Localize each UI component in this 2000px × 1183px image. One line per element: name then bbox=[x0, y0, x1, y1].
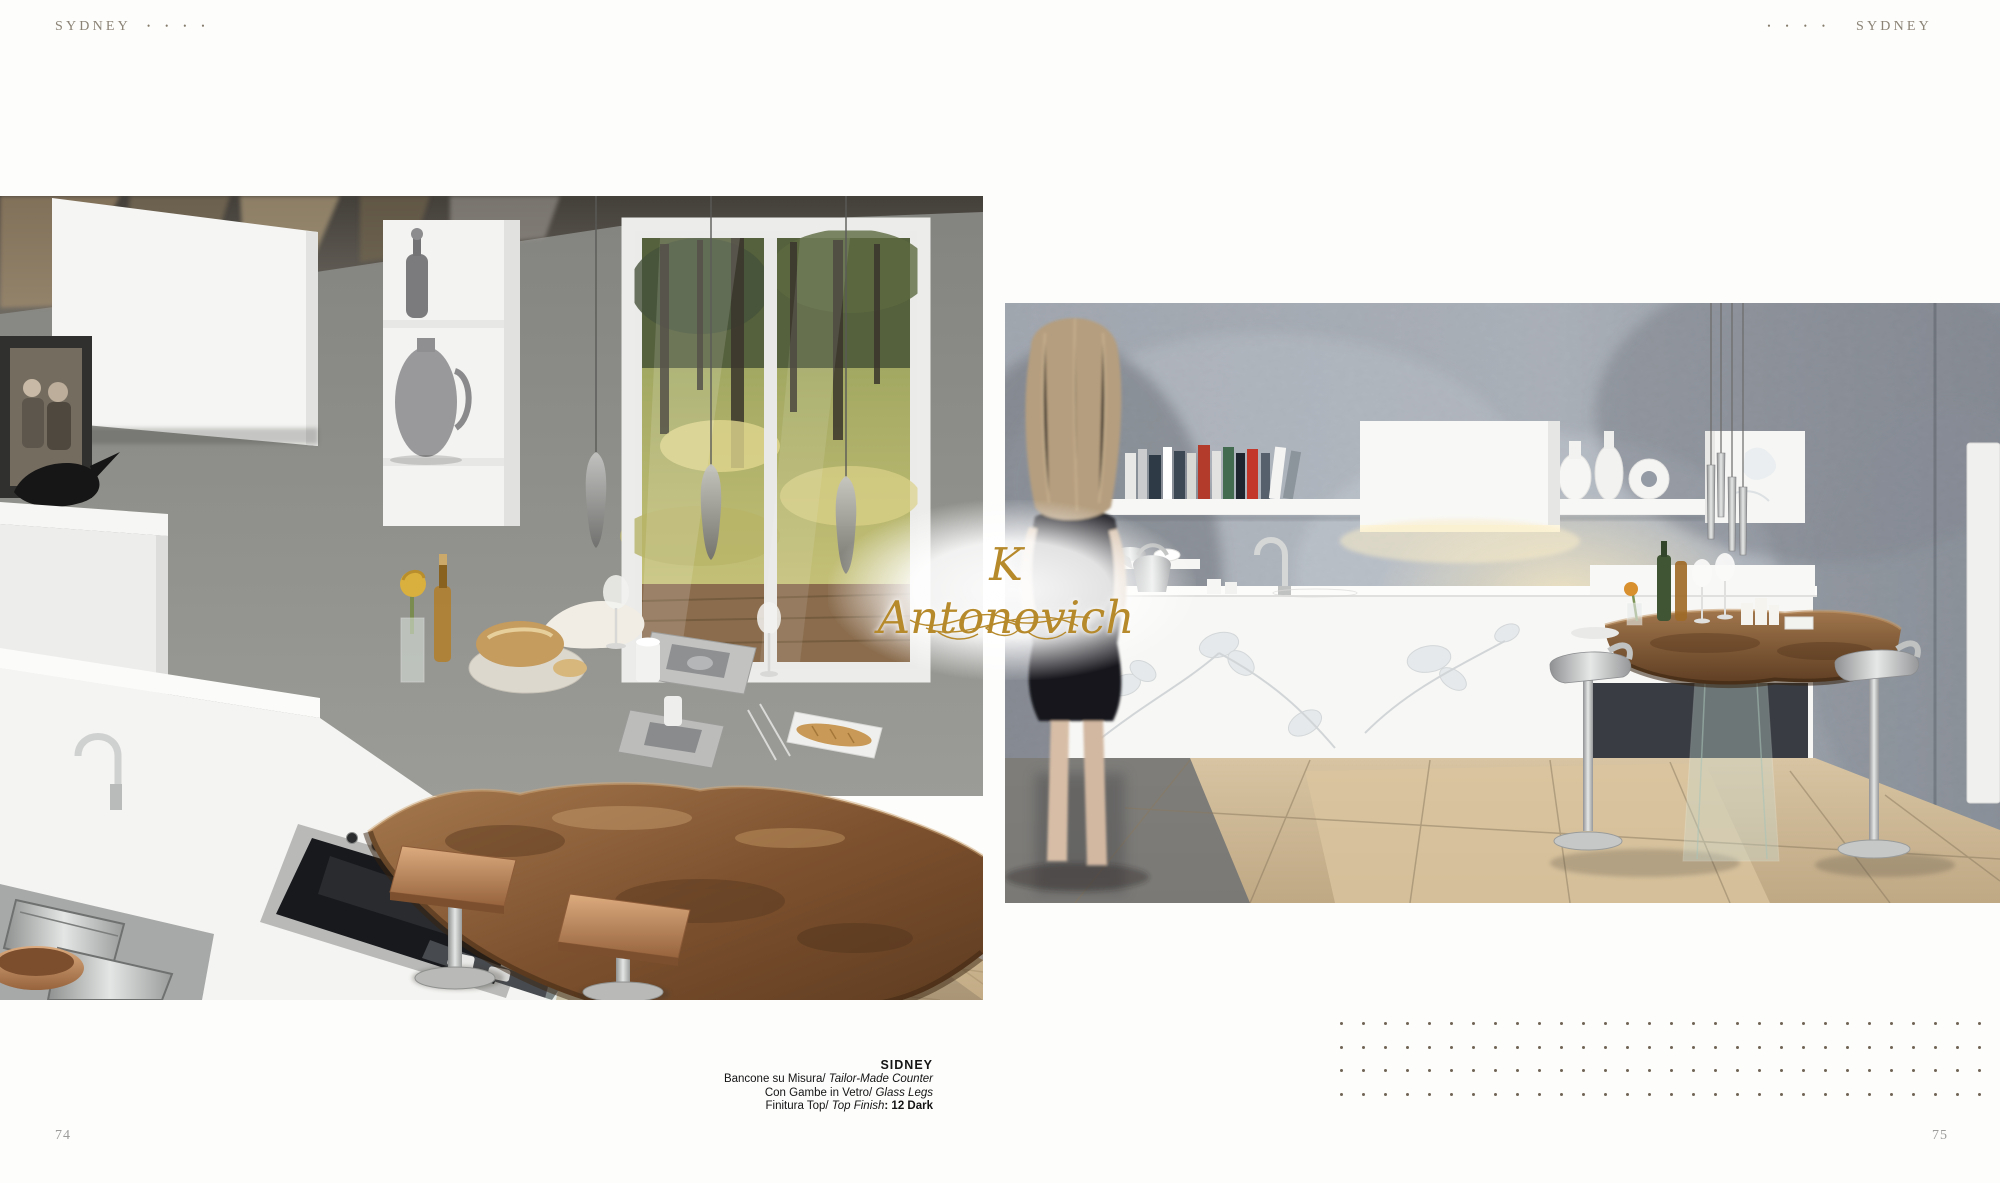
pattern-dot bbox=[1692, 1046, 1695, 1049]
pattern-dot bbox=[1846, 1022, 1849, 1025]
pattern-dot bbox=[1714, 1069, 1717, 1072]
pattern-dot bbox=[1648, 1093, 1651, 1096]
pattern-dot bbox=[1780, 1093, 1783, 1096]
pattern-dot bbox=[1758, 1022, 1761, 1025]
kitchen-photo-left bbox=[0, 196, 983, 1000]
pattern-dot bbox=[1824, 1022, 1827, 1025]
rose-vase bbox=[400, 571, 426, 682]
pattern-dot bbox=[1780, 1022, 1783, 1025]
header-left-dots: •••• bbox=[147, 21, 220, 31]
pattern-dot bbox=[1384, 1046, 1387, 1049]
tile-floor-right bbox=[1005, 758, 2000, 903]
pattern-dot bbox=[1582, 1022, 1585, 1025]
pattern-dot bbox=[1978, 1069, 1981, 1072]
pattern-dot bbox=[1758, 1069, 1761, 1072]
pattern-dot bbox=[1604, 1093, 1607, 1096]
pattern-dot bbox=[1912, 1022, 1915, 1025]
pattern-dot bbox=[1890, 1022, 1893, 1025]
pattern-dot bbox=[1692, 1069, 1695, 1072]
pattern-dot bbox=[1802, 1022, 1805, 1025]
pattern-dot bbox=[1736, 1093, 1739, 1096]
wine-bottle-green bbox=[1657, 555, 1671, 621]
page-number-right: 75 bbox=[1932, 1128, 1948, 1144]
pattern-dot bbox=[1934, 1069, 1937, 1072]
pattern-dot bbox=[1736, 1069, 1739, 1072]
pattern-dot bbox=[1780, 1046, 1783, 1049]
pattern-dot bbox=[1890, 1069, 1893, 1072]
pattern-dot bbox=[1648, 1046, 1651, 1049]
pattern-dot bbox=[1582, 1069, 1585, 1072]
header-left-label: SYDNEY bbox=[55, 19, 131, 35]
pattern-dot bbox=[1824, 1069, 1827, 1072]
pattern-dot bbox=[1604, 1069, 1607, 1072]
pattern-dot bbox=[1934, 1046, 1937, 1049]
pattern-dot bbox=[1560, 1069, 1563, 1072]
caption-line: Con Gambe in Vetro/ Glass Legs bbox=[724, 1087, 933, 1100]
pattern-dot bbox=[1494, 1022, 1497, 1025]
pattern-dot bbox=[1538, 1069, 1541, 1072]
pattern-dot bbox=[1912, 1046, 1915, 1049]
pattern-dot bbox=[1802, 1069, 1805, 1072]
pattern-dot bbox=[1670, 1046, 1673, 1049]
pattern-dot bbox=[1538, 1093, 1541, 1096]
pattern-dot bbox=[1384, 1022, 1387, 1025]
pattern-dot bbox=[1472, 1022, 1475, 1025]
pattern-dot bbox=[1890, 1046, 1893, 1049]
pattern-dot bbox=[1582, 1046, 1585, 1049]
pattern-dot bbox=[1604, 1022, 1607, 1025]
pattern-dot bbox=[1450, 1069, 1453, 1072]
pattern-dot bbox=[1406, 1046, 1409, 1049]
pattern-dot bbox=[1670, 1069, 1673, 1072]
header-right-dots: •••• bbox=[1767, 21, 1840, 31]
pattern-dot bbox=[1428, 1022, 1431, 1025]
pattern-dot bbox=[1626, 1093, 1629, 1096]
pattern-dot bbox=[1846, 1069, 1849, 1072]
pattern-dot bbox=[1714, 1093, 1717, 1096]
sugar-box bbox=[1785, 617, 1813, 629]
pattern-dot bbox=[1758, 1093, 1761, 1096]
glass-leg bbox=[1683, 681, 1779, 861]
pattern-dot bbox=[1538, 1022, 1541, 1025]
pattern-dot bbox=[1362, 1022, 1365, 1025]
wine-bottle-amber bbox=[1675, 561, 1687, 621]
pattern-dot bbox=[1648, 1022, 1651, 1025]
white-door-panel bbox=[1967, 443, 2000, 803]
pattern-dot bbox=[1560, 1022, 1563, 1025]
pattern-dot bbox=[1714, 1046, 1717, 1049]
pattern-dot bbox=[1626, 1069, 1629, 1072]
pattern-dot bbox=[1824, 1046, 1827, 1049]
pattern-dot bbox=[1450, 1046, 1453, 1049]
pattern-dot bbox=[1472, 1093, 1475, 1096]
cup-2 bbox=[1225, 582, 1237, 594]
pattern-dot bbox=[1406, 1022, 1409, 1025]
pattern-dot bbox=[1670, 1093, 1673, 1096]
pattern-dot bbox=[1978, 1093, 1981, 1096]
pattern-dot bbox=[1406, 1093, 1409, 1096]
blonde-hair bbox=[1025, 318, 1121, 520]
pattern-dot bbox=[1362, 1093, 1365, 1096]
pattern-dot bbox=[1384, 1093, 1387, 1096]
pattern-dot bbox=[1472, 1046, 1475, 1049]
pattern-dot bbox=[1758, 1046, 1761, 1049]
pattern-dot bbox=[1362, 1069, 1365, 1072]
pattern-dot bbox=[1428, 1046, 1431, 1049]
pattern-dot bbox=[1406, 1069, 1409, 1072]
pattern-dot bbox=[1868, 1022, 1871, 1025]
pattern-dot bbox=[1846, 1093, 1849, 1096]
flower bbox=[1624, 582, 1638, 596]
right-leg bbox=[1083, 715, 1107, 865]
page-number-left: 74 bbox=[55, 1128, 71, 1144]
pattern-dot bbox=[1956, 1069, 1959, 1072]
pattern-dot bbox=[1780, 1069, 1783, 1072]
pattern-dot bbox=[1736, 1022, 1739, 1025]
pattern-dot bbox=[1340, 1093, 1343, 1096]
pattern-dot bbox=[1670, 1022, 1673, 1025]
pattern-dot bbox=[1736, 1046, 1739, 1049]
pattern-dot bbox=[1846, 1046, 1849, 1049]
pattern-dot bbox=[1516, 1046, 1519, 1049]
pattern-dot bbox=[1472, 1069, 1475, 1072]
display-shelf bbox=[383, 220, 520, 526]
product-caption: SIDNEY Bancone su Misura/ Tailor-Made Co… bbox=[724, 1059, 933, 1114]
pattern-dot bbox=[1956, 1022, 1959, 1025]
pattern-dot bbox=[1340, 1069, 1343, 1072]
pattern-dot bbox=[1692, 1093, 1695, 1096]
header-right-label: SYDNEY bbox=[1856, 19, 1932, 35]
caption-line: Bancone su Misura/ Tailor-Made Counter bbox=[724, 1073, 933, 1086]
pattern-dot bbox=[1604, 1046, 1607, 1049]
pattern-dot bbox=[1340, 1046, 1343, 1049]
pattern-dot bbox=[1648, 1069, 1651, 1072]
pattern-dot bbox=[1802, 1046, 1805, 1049]
cup bbox=[1207, 579, 1221, 594]
pattern-dot bbox=[1868, 1046, 1871, 1049]
pattern-dot bbox=[1494, 1069, 1497, 1072]
pattern-dot bbox=[1868, 1069, 1871, 1072]
pattern-dot bbox=[1384, 1069, 1387, 1072]
watermark-flourish bbox=[908, 604, 1092, 648]
pattern-dot bbox=[1956, 1093, 1959, 1096]
pattern-dot bbox=[1450, 1022, 1453, 1025]
catalog-spread: SYDNEY •••• •••• SYDNEY bbox=[0, 0, 2000, 1183]
pattern-dot bbox=[1824, 1093, 1827, 1096]
pattern-dot bbox=[1978, 1022, 1981, 1025]
pattern-dot bbox=[1494, 1046, 1497, 1049]
pattern-dot bbox=[1362, 1046, 1365, 1049]
pattern-dot bbox=[1428, 1093, 1431, 1096]
pattern-dot bbox=[1890, 1093, 1893, 1096]
pattern-dot bbox=[1582, 1093, 1585, 1096]
pattern-dot bbox=[1692, 1022, 1695, 1025]
pattern-dot bbox=[1934, 1022, 1937, 1025]
caption-title: SIDNEY bbox=[724, 1059, 933, 1072]
header-left: SYDNEY •••• bbox=[55, 19, 220, 35]
pattern-dot bbox=[1516, 1069, 1519, 1072]
pattern-dot bbox=[1912, 1093, 1915, 1096]
pattern-dot bbox=[1934, 1093, 1937, 1096]
pattern-dot bbox=[1428, 1069, 1431, 1072]
pattern-dot bbox=[1516, 1022, 1519, 1025]
pattern-dot bbox=[1560, 1046, 1563, 1049]
pattern-dot bbox=[1626, 1022, 1629, 1025]
pattern-dot bbox=[1714, 1022, 1717, 1025]
pattern-dot bbox=[1978, 1046, 1981, 1049]
pattern-dot bbox=[1450, 1093, 1453, 1096]
pattern-dot bbox=[1560, 1093, 1563, 1096]
pattern-dot bbox=[1340, 1022, 1343, 1025]
pattern-dot bbox=[1538, 1046, 1541, 1049]
pattern-dot bbox=[1802, 1093, 1805, 1096]
pattern-dot bbox=[1868, 1093, 1871, 1096]
pattern-dot bbox=[1956, 1046, 1959, 1049]
pattern-dot bbox=[1912, 1069, 1915, 1072]
caption-line: Finitura Top/ Top Finish: 12 Dark bbox=[724, 1100, 933, 1113]
wall-cabinet-center bbox=[1340, 421, 1580, 563]
header-right: •••• SYDNEY bbox=[1767, 19, 1932, 35]
pattern-dot bbox=[1516, 1093, 1519, 1096]
pattern-dot bbox=[1494, 1093, 1497, 1096]
pattern-dot bbox=[1626, 1046, 1629, 1049]
